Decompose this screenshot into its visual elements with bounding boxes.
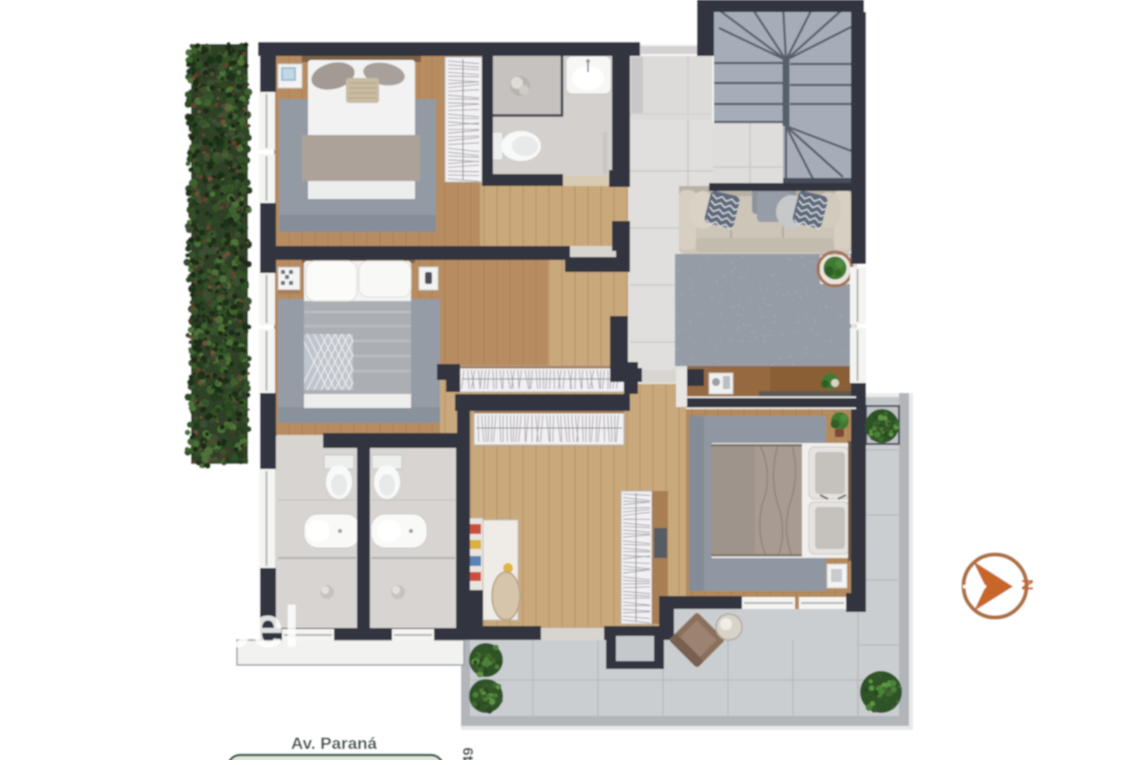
svg-text:49: 49: [460, 747, 477, 760]
svg-text:N: N: [1018, 579, 1035, 591]
svg-text:Av. Paraná: Av. Paraná: [291, 734, 378, 753]
svg-text:bel: bel: [216, 595, 300, 660]
